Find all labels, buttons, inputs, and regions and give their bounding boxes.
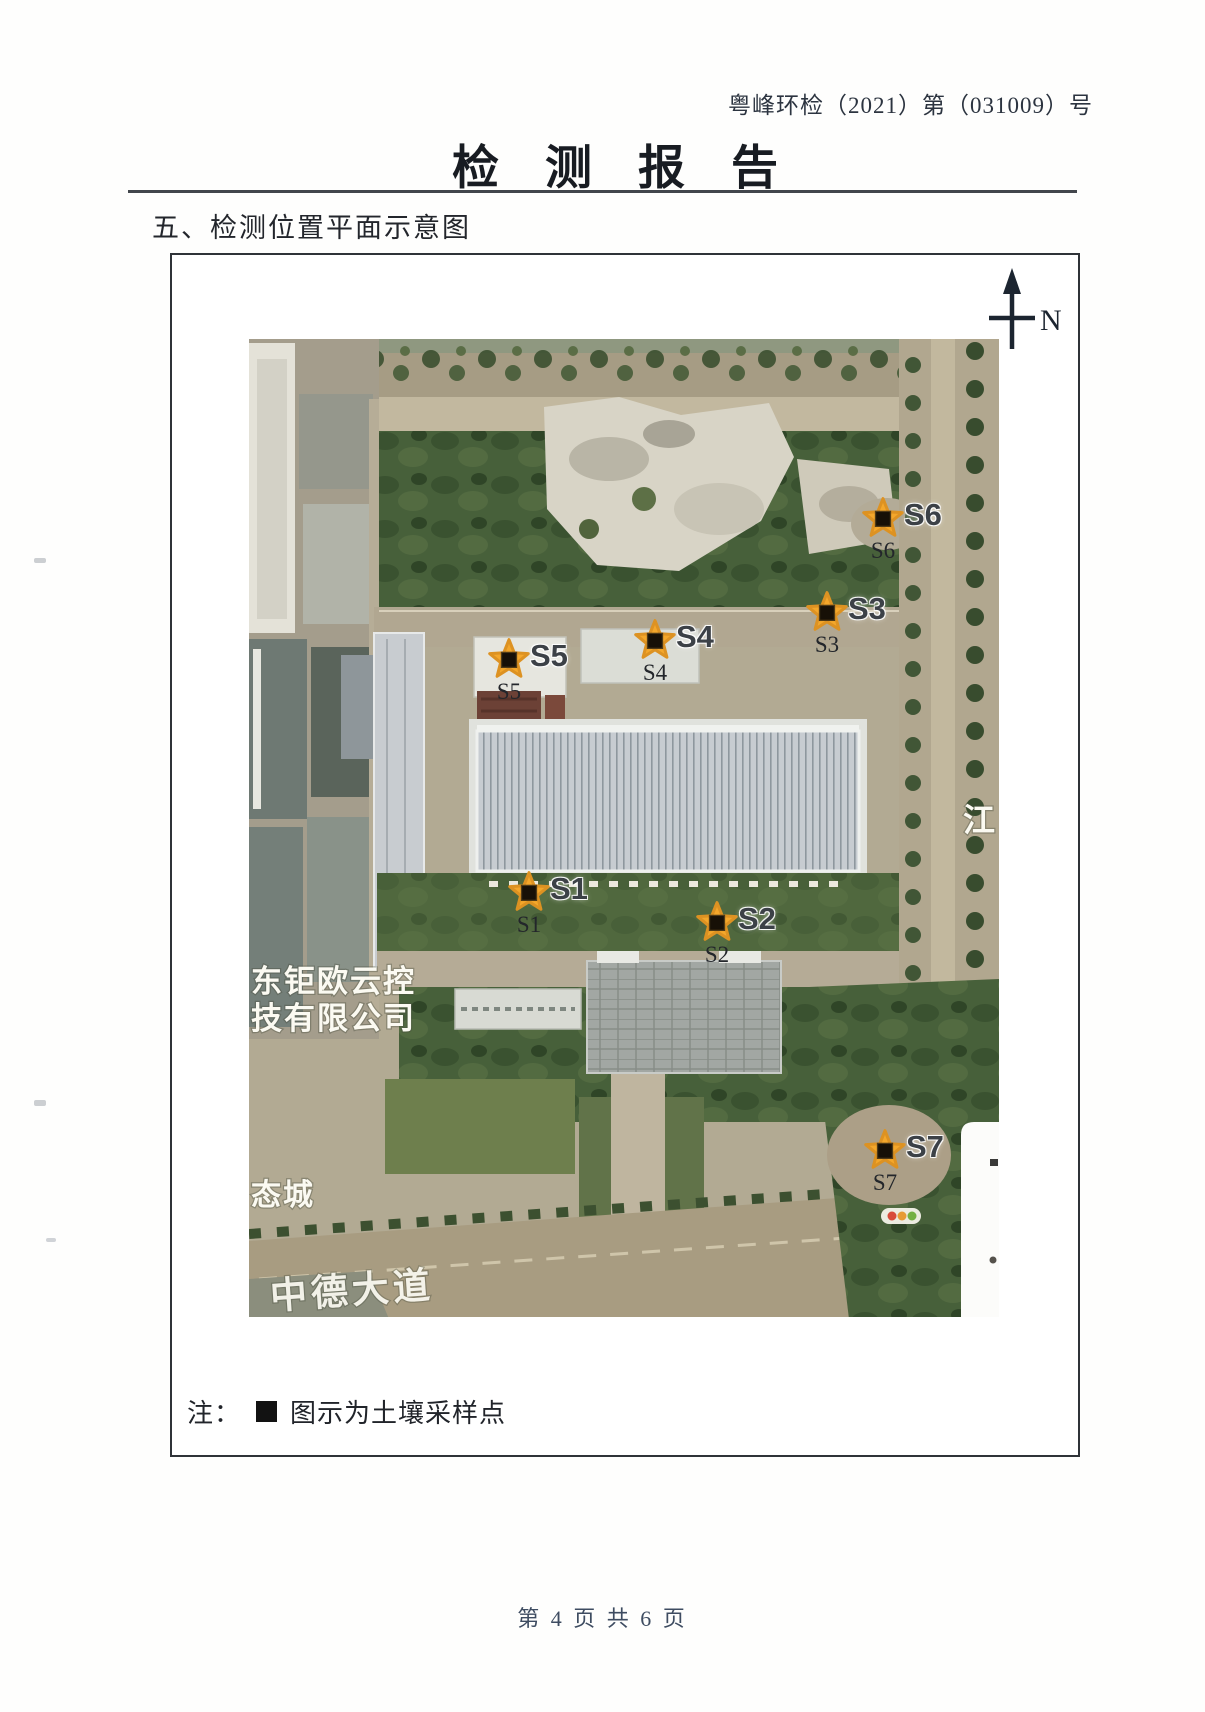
- map-label-eco-city: 态城: [251, 1179, 315, 1212]
- north-arrow-icon: [989, 268, 1035, 349]
- sample-point-label: S7: [906, 1131, 944, 1162]
- sample-point-sublabel: S2: [705, 942, 729, 967]
- sample-point-sublabel: S3: [815, 632, 839, 657]
- note-text: 图示为土壤采样点: [290, 1393, 506, 1430]
- sample-point-sublabel: S1: [517, 912, 541, 937]
- map-label-company-line2: 技有限公司: [251, 1001, 416, 1036]
- sample-point-sublabel: S5: [497, 679, 521, 704]
- legend-note: 注： 图示为土壤采样点: [187, 1393, 506, 1430]
- title-underline: [128, 190, 1077, 193]
- star-sample-icon: [633, 618, 677, 662]
- site-plan-box: N: [170, 253, 1080, 1457]
- note-prefix: 注：: [187, 1393, 241, 1430]
- sample-point-label: S3: [848, 593, 886, 624]
- page-footer: 第 4 页 共 6 页: [0, 1601, 1205, 1633]
- star-sample-icon: [507, 870, 551, 914]
- scan-artifact: [34, 558, 46, 563]
- scan-artifact: [34, 1100, 46, 1106]
- star-sample-icon: [695, 900, 739, 944]
- sample-point-sublabel: S6: [871, 538, 895, 563]
- doc-number: 粤峰环检（2021）第（031009）号: [728, 86, 1093, 120]
- sample-point-label: S4: [676, 621, 714, 652]
- soil-sample-square-icon: [256, 1401, 277, 1422]
- star-sample-icon: [805, 590, 849, 634]
- star-sample-icon: [487, 637, 531, 681]
- map-label-company-line1: 东钜欧云控: [251, 964, 416, 999]
- sample-point-label: S2: [738, 903, 776, 934]
- sample-point-label: S5: [530, 640, 568, 671]
- map-label-river: 江: [963, 802, 995, 838]
- sample-point-sublabel: S7: [873, 1170, 897, 1195]
- sample-point-label: S6: [904, 499, 942, 530]
- satellite-map: 东钜欧云控 技有限公司 态城 江 中德大道 S1 S1: [249, 339, 999, 1317]
- report-page: 粤峰环检（2021）第（031009）号 检测报告 五、检测位置平面示意图 N: [0, 0, 1205, 1712]
- sample-point-label: S1: [550, 873, 588, 904]
- page-title: 检测报告: [452, 129, 824, 198]
- section-heading: 五、检测位置平面示意图: [152, 206, 471, 245]
- map-watermark-dots-icon: [881, 1208, 921, 1224]
- compass-n-label: N: [1040, 304, 1062, 337]
- sample-point-sublabel: S4: [643, 660, 667, 685]
- scan-artifact: [46, 1238, 56, 1242]
- star-sample-icon: [861, 496, 905, 540]
- star-sample-icon: [863, 1128, 907, 1172]
